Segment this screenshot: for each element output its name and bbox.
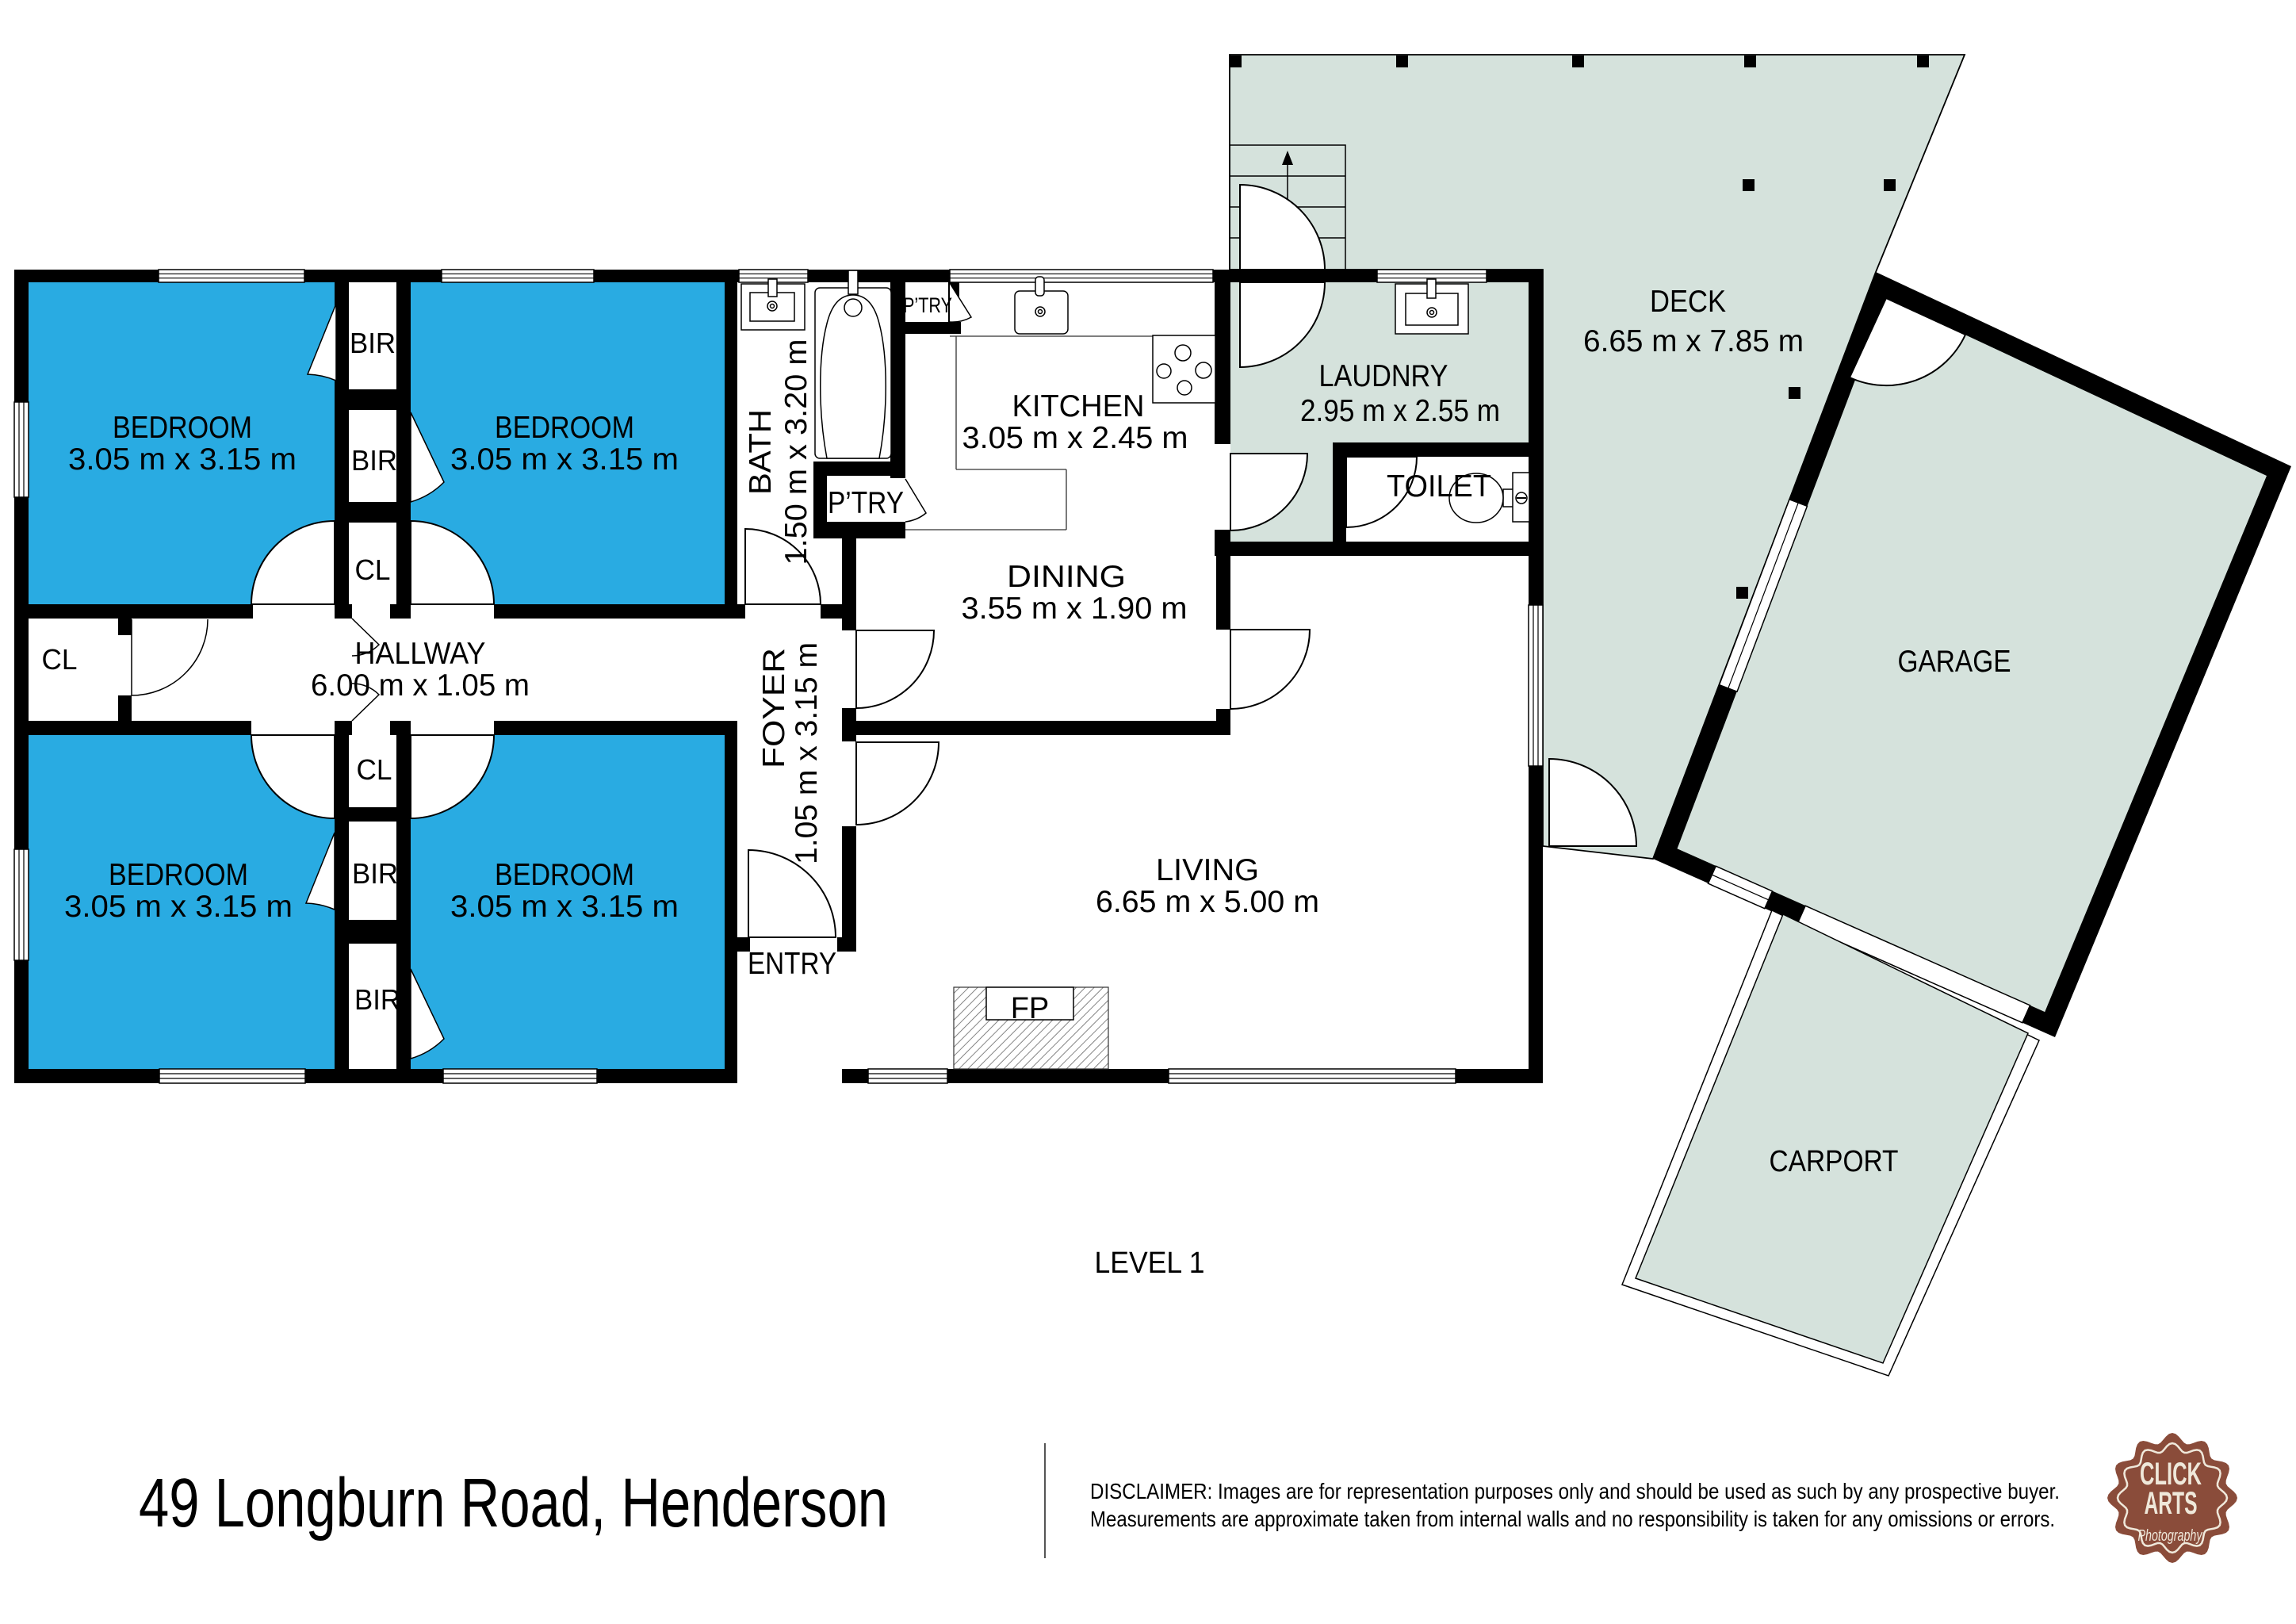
- svg-text:BEDROOM: BEDROOM: [495, 411, 634, 445]
- svg-text:FOYER: FOYER: [757, 648, 791, 768]
- svg-text:1.05 m x 3.15 m: 1.05 m x 3.15 m: [790, 642, 824, 864]
- svg-text:1.50 m x 3.20 m: 1.50 m x 3.20 m: [779, 339, 813, 565]
- svg-text:P’TRY: P’TRY: [828, 486, 904, 520]
- svg-text:DECK: DECK: [1650, 285, 1726, 319]
- svg-text:BIR: BIR: [354, 983, 400, 1016]
- svg-text:P’TRY: P’TRY: [903, 293, 952, 317]
- svg-text:BIR: BIR: [351, 444, 397, 477]
- svg-text:BEDROOM: BEDROOM: [109, 858, 248, 892]
- svg-text:CARPORT: CARPORT: [1770, 1145, 1899, 1178]
- svg-text:BATH: BATH: [744, 409, 778, 495]
- svg-text:3.05 m x 3.15 m: 3.05 m x 3.15 m: [450, 890, 679, 924]
- svg-text:TOILET: TOILET: [1387, 469, 1491, 504]
- svg-text:CL: CL: [42, 643, 78, 676]
- svg-text:CL: CL: [355, 553, 391, 586]
- svg-text:LAUDNRY: LAUDNRY: [1319, 359, 1448, 393]
- svg-text:6.65 m x 5.00 m: 6.65 m x 5.00 m: [1096, 885, 1319, 919]
- svg-text:BEDROOM: BEDROOM: [113, 411, 252, 445]
- svg-text:49 Longburn Road, Henderson: 49 Longburn Road, Henderson: [139, 1465, 888, 1542]
- svg-text:BEDROOM: BEDROOM: [495, 858, 634, 892]
- svg-text:Photography: Photography: [2138, 1527, 2203, 1545]
- svg-text:GARAGE: GARAGE: [1898, 645, 2011, 679]
- svg-text:3.05 m x 3.15 m: 3.05 m x 3.15 m: [68, 442, 297, 477]
- svg-text:6.65 m x 7.85 m: 6.65 m x 7.85 m: [1583, 324, 1804, 358]
- svg-text:6.00 m x 1.05 m: 6.00 m x 1.05 m: [311, 668, 530, 703]
- svg-text:3.05 m x 2.45 m: 3.05 m x 2.45 m: [962, 421, 1188, 455]
- svg-text:DISCLAIMER: Images are for rep: DISCLAIMER: Images are for representatio…: [1090, 1479, 2060, 1503]
- svg-text:FP: FP: [1011, 992, 1050, 1025]
- svg-text:BIR: BIR: [352, 857, 398, 890]
- svg-text:LIVING: LIVING: [1156, 853, 1259, 887]
- svg-text:Measurements are approximate t: Measurements are approximate taken from …: [1090, 1507, 2055, 1531]
- svg-text:3.05 m x 3.15 m: 3.05 m x 3.15 m: [450, 442, 679, 477]
- svg-text:2.95 m x 2.55 m: 2.95 m x 2.55 m: [1300, 394, 1500, 428]
- svg-text:HALLWAY: HALLWAY: [355, 637, 486, 671]
- svg-text:3.55 m x 1.90 m: 3.55 m x 1.90 m: [962, 592, 1188, 626]
- svg-text:LEVEL 1: LEVEL 1: [1095, 1247, 1205, 1280]
- svg-text:ARTS: ARTS: [2145, 1486, 2198, 1521]
- svg-text:KITCHEN: KITCHEN: [1012, 389, 1145, 423]
- svg-text:ENTRY: ENTRY: [748, 947, 836, 981]
- svg-text:BIR: BIR: [350, 327, 396, 359]
- svg-text:CL: CL: [357, 753, 392, 786]
- svg-text:3.05 m x 3.15 m: 3.05 m x 3.15 m: [64, 890, 293, 924]
- svg-text:DINING: DINING: [1007, 560, 1126, 594]
